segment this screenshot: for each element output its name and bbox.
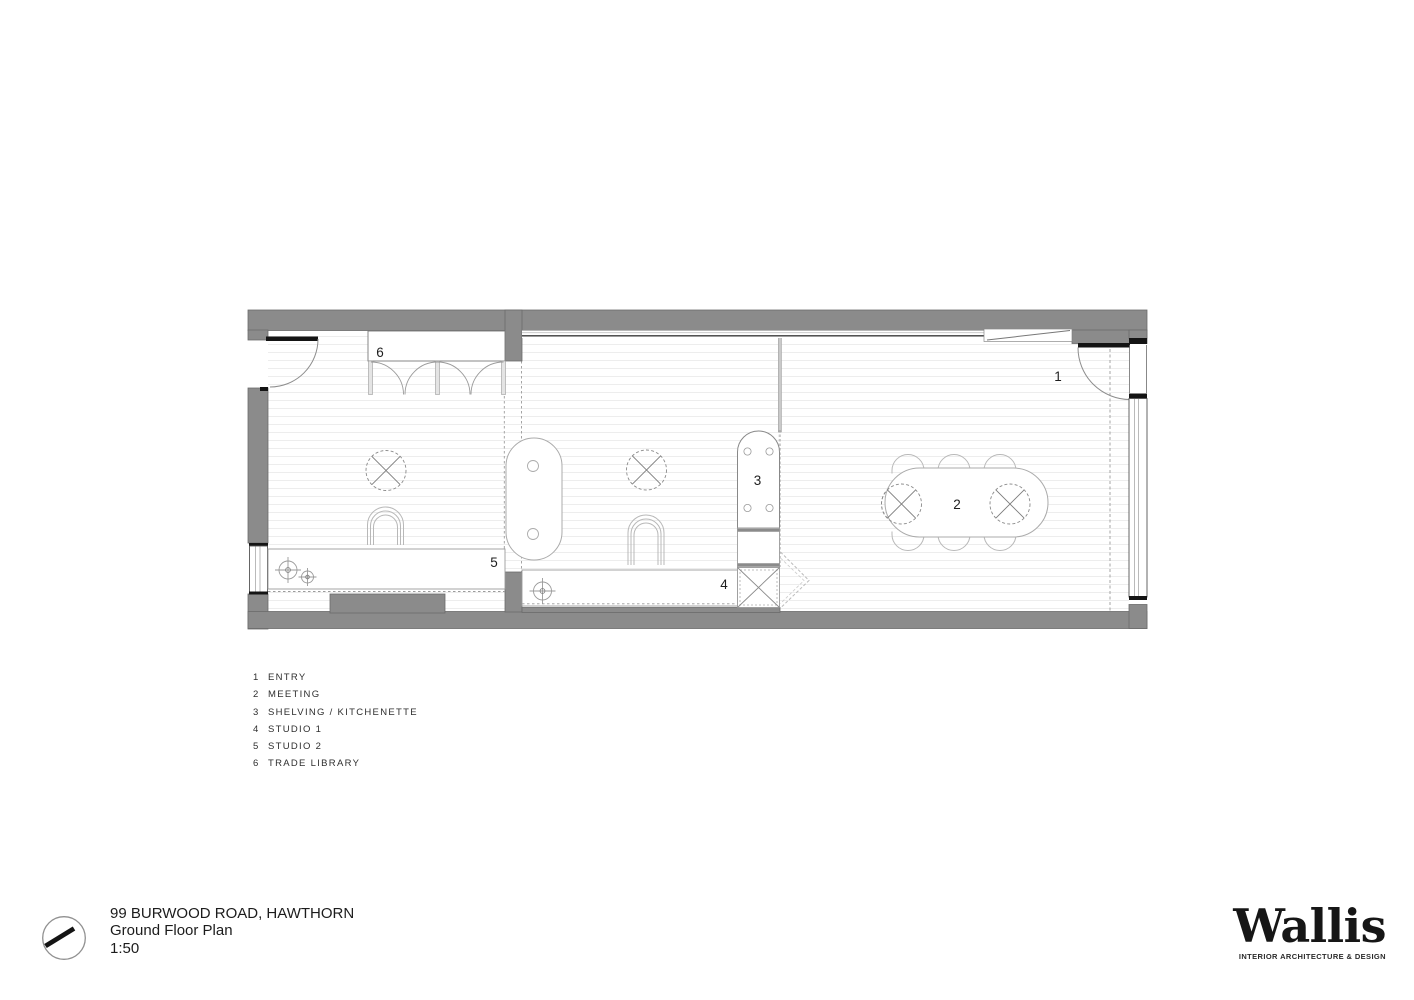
room-marker-entry: 1 — [1054, 369, 1062, 384]
legend-item: 4 STUDIO 1 — [253, 721, 418, 738]
legend-label: STUDIO 1 — [268, 721, 322, 738]
legend-label: MEETING — [268, 686, 320, 703]
drawing-scale: 1:50 — [110, 940, 354, 957]
legend-number: 4 — [253, 721, 268, 738]
studio1-desk — [522, 570, 738, 606]
entry-recess — [984, 329, 1072, 342]
drawing-sheet: 1 2 3 4 5 6 1 ENTRY 2 MEETING 3 SHELVING… — [0, 0, 1414, 1000]
drawing-title: Ground Floor Plan — [110, 922, 354, 939]
legend-item: 6 TRADE LIBRARY — [253, 755, 418, 772]
title-block: 99 BURWOOD ROAD, HAWTHORN Ground Floor P… — [110, 905, 354, 957]
firm-logo: Wallis INTERIOR ARCHITECTURE & DESIGN — [1233, 901, 1386, 961]
logo-tagline: INTERIOR ARCHITECTURE & DESIGN — [1233, 952, 1386, 961]
north-arrow-icon — [41, 915, 87, 961]
legend-number: 1 — [253, 669, 268, 686]
legend-label: ENTRY — [268, 669, 307, 686]
project-address: 99 BURWOOD ROAD, HAWTHORN — [110, 905, 354, 922]
legend-number: 5 — [253, 738, 268, 755]
legend-number: 3 — [253, 704, 268, 721]
legend-item: 5 STUDIO 2 — [253, 738, 418, 755]
legend-label: TRADE LIBRARY — [268, 755, 360, 772]
logo-wordmark: Wallis — [1233, 901, 1386, 951]
legend-label: SHELVING / KITCHENETTE — [268, 704, 418, 721]
floor-plan: 1 2 3 4 5 6 — [240, 298, 1160, 638]
legend-number: 6 — [253, 755, 268, 772]
room-marker-meeting: 2 — [953, 497, 961, 512]
legend-number: 2 — [253, 686, 268, 703]
room-marker-kitchenette: 3 — [754, 473, 762, 488]
legend-label: STUDIO 2 — [268, 738, 322, 755]
room-legend: 1 ENTRY 2 MEETING 3 SHELVING / KITCHENET… — [253, 669, 418, 773]
legend-item: 1 ENTRY — [253, 669, 418, 686]
studio2-desk — [268, 549, 505, 592]
legend-item: 2 MEETING — [253, 686, 418, 703]
legend-item: 3 SHELVING / KITCHENETTE — [253, 704, 418, 721]
window-left — [249, 543, 268, 595]
room-marker-studio1: 4 — [720, 577, 728, 592]
oval-desk — [506, 438, 562, 560]
floor-plan-drawing: 1 2 3 4 5 6 — [240, 298, 1160, 638]
room-marker-trade-library: 6 — [376, 345, 384, 360]
room-marker-studio2: 5 — [490, 555, 498, 570]
window-right — [1129, 394, 1147, 601]
